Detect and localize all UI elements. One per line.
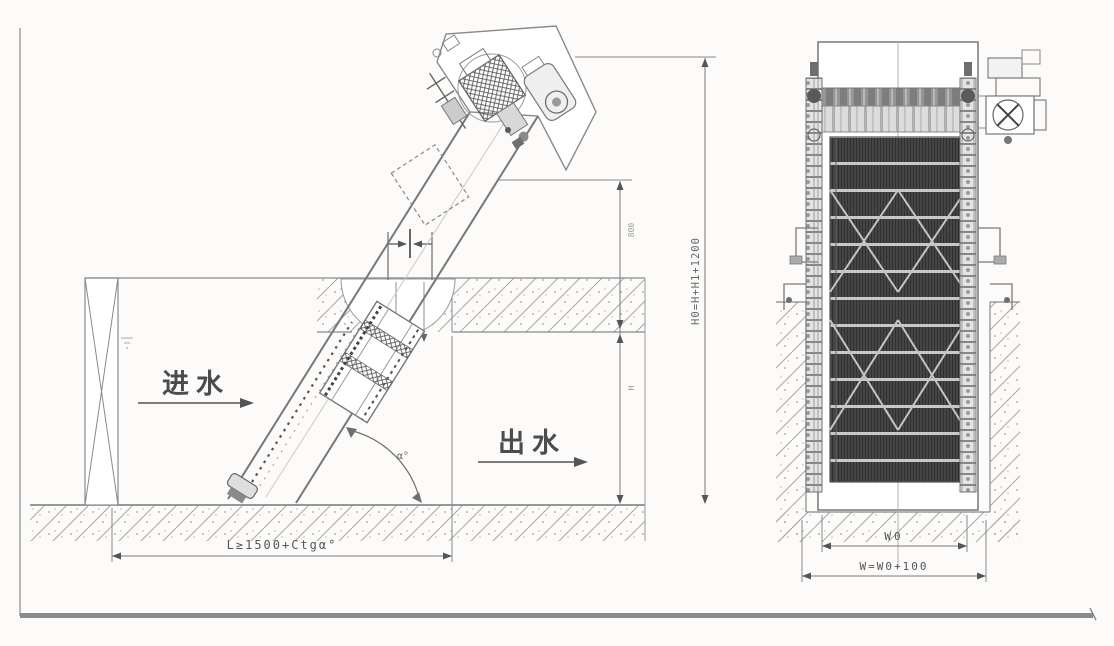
angle-label: α° xyxy=(397,451,409,462)
w0-label: W0 xyxy=(884,530,903,543)
discharge-opening xyxy=(391,145,468,225)
chain-left xyxy=(806,62,822,492)
drawing-page: α° 进水 出水 800 H xyxy=(0,0,1114,646)
upper-height-dim: 800 xyxy=(627,223,636,238)
w-formula-label: W=W0+100 xyxy=(860,560,929,573)
chain-right xyxy=(960,62,976,492)
channel-floor xyxy=(30,505,645,541)
side-view: α° 进水 出水 800 H xyxy=(30,26,716,562)
mesh-panel xyxy=(830,137,966,482)
inlet-flow-label: 进水 xyxy=(138,369,254,408)
screen-foot xyxy=(222,472,259,507)
motor-assembly xyxy=(978,50,1046,144)
engineering-drawing: α° 进水 出水 800 H xyxy=(0,0,1114,646)
length-formula: L≥1500+Ctgα° xyxy=(227,538,338,552)
angle-arc: α° xyxy=(346,427,422,503)
inlet-wall-brace xyxy=(85,278,118,505)
inlet-label: 进水 xyxy=(162,369,230,400)
front-view: W0 W=W0+100 xyxy=(776,42,1046,582)
total-height-formula: H0=H+H1+1200 xyxy=(690,237,702,325)
water-level-mark xyxy=(121,338,133,349)
outlet-label: 出水 xyxy=(498,428,566,459)
head-drum-bands xyxy=(820,88,976,132)
channel-depth-dim: H xyxy=(627,385,636,390)
outlet-flow-label: 出水 xyxy=(478,428,588,467)
